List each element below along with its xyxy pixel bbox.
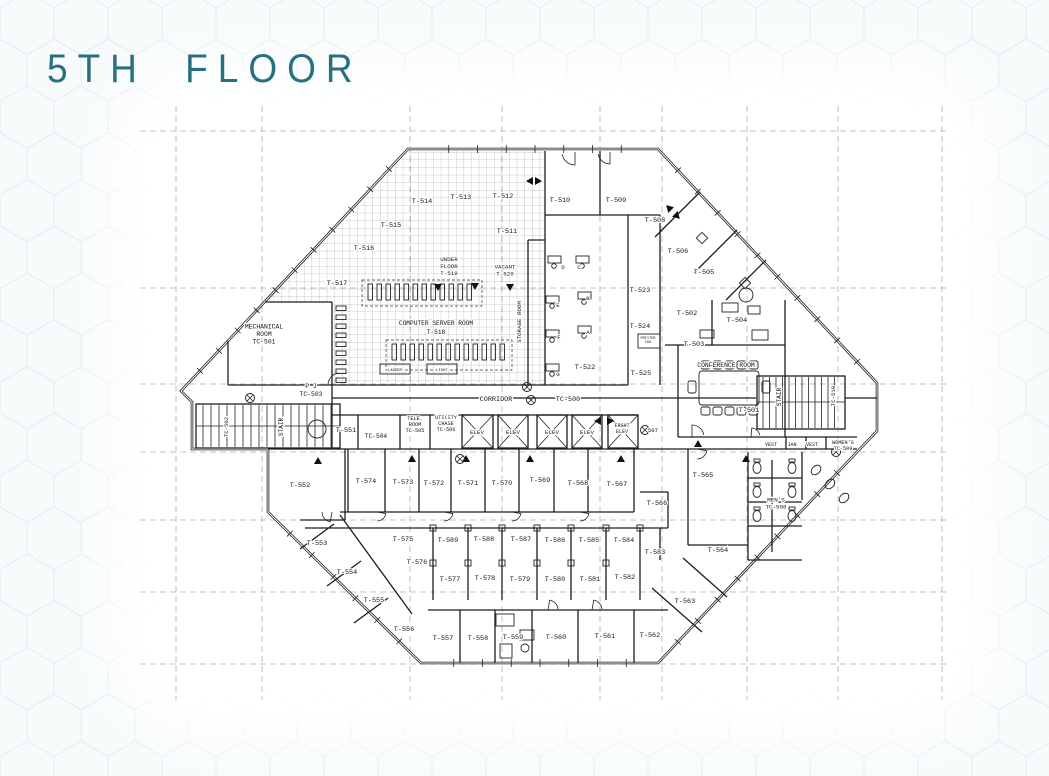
room-label: 507	[648, 427, 658, 434]
door-swing	[697, 449, 707, 459]
room-label: T-511	[497, 228, 517, 236]
room-label: LIGHT	[436, 369, 448, 373]
room-label: T-570	[492, 480, 512, 488]
room-label: WOMEN'STC-509	[832, 440, 854, 452]
room-label: TC-502	[223, 417, 230, 437]
room-label: STORAGE ROOM	[516, 301, 523, 343]
room-label: VEST	[806, 442, 818, 448]
room-label: UNDERFLOORT-519	[440, 256, 458, 277]
room-label: VEST	[765, 442, 777, 448]
room-label: T-566	[647, 500, 667, 508]
room-label: T-514	[412, 198, 432, 206]
room-label: T-517	[327, 280, 347, 288]
room-label: T-558	[468, 635, 488, 643]
room-label: T-576	[407, 559, 427, 567]
room-label: STAIR	[278, 417, 285, 436]
room-label: T-560	[546, 634, 566, 642]
room-label: MECHANICALROOMTC-501	[245, 323, 284, 345]
room-label: T-571	[458, 480, 478, 488]
room-label: T-583	[645, 549, 665, 557]
room-label: T-577	[440, 576, 460, 584]
floor-plan-drawing: T-514T-513T-512T-515T-516T-517T-511UNDER…	[0, 0, 1049, 776]
room-label: T-565	[693, 472, 713, 480]
room-label: LADDER	[388, 369, 402, 373]
room-label: T-578	[475, 575, 495, 583]
room-label: T-587	[511, 536, 531, 544]
room-label: T-561	[595, 633, 615, 641]
room-label: T-515	[381, 222, 401, 230]
room-label: T-588	[474, 536, 494, 544]
room-label: T-567	[607, 481, 627, 489]
room-label: T-589	[438, 537, 458, 545]
room-label: F	[557, 334, 561, 341]
room-label: T-585	[579, 537, 599, 545]
room-label: T-582	[615, 574, 635, 582]
room-label: T-574	[356, 478, 376, 486]
door-swing	[592, 600, 602, 610]
room-label: T-564	[708, 547, 728, 555]
room-label: T-504	[727, 317, 747, 325]
room-label: JAN	[787, 442, 796, 448]
room-label: T-568	[568, 480, 588, 488]
room-label: CONFERENCE ROOM	[697, 362, 755, 369]
room-label: T-579	[510, 576, 530, 584]
room-label: TC-500	[556, 396, 580, 404]
room-label: T-586	[545, 537, 565, 545]
room-label: T-516	[354, 245, 374, 253]
room-label: T-522	[575, 364, 595, 372]
room-label: D	[561, 264, 565, 271]
room-label: T-573	[393, 479, 413, 487]
room-label: A	[586, 329, 590, 336]
room-label: TC-510	[830, 385, 837, 406]
door-swing	[562, 152, 575, 165]
room-label: T-575	[393, 536, 413, 544]
room-label: T-556	[394, 626, 414, 634]
room-label: FRGHTELEV	[614, 423, 629, 435]
room-label: C	[577, 264, 581, 271]
room-label: E	[556, 302, 560, 309]
room-label: T-524	[630, 323, 650, 331]
room-label: COMPUTER SERVER ROOM	[399, 320, 474, 327]
room-label: T-512	[493, 193, 513, 201]
room-label: STAIR	[776, 387, 783, 406]
room-label: T-551	[336, 427, 356, 435]
room-label: T-557	[433, 635, 453, 643]
room-label: T-554	[337, 569, 357, 577]
room-label: T-510	[550, 197, 570, 205]
room-label: ELEV	[506, 429, 520, 436]
room-label: ELEV	[580, 429, 594, 436]
room-label: T-525	[631, 370, 651, 378]
room-label: B	[586, 295, 590, 302]
page: 5TH FLOOR T-514T-513T-512T-515T-516T-517…	[0, 0, 1049, 776]
room-label: PRINTERFAX	[640, 337, 656, 345]
room-label: T-569	[530, 477, 550, 485]
room-label: T-572	[424, 480, 444, 488]
room-label: T-559	[503, 634, 523, 642]
room-label: CORRIDOR	[480, 396, 513, 404]
door-swing	[548, 600, 558, 610]
room-label: T-509	[606, 197, 626, 205]
room-label: T-555	[364, 597, 384, 605]
room-label: ELEV	[545, 429, 559, 436]
room-label: T-503	[684, 341, 704, 349]
room-label: T-584	[614, 537, 634, 545]
room-label: UTILITYCHASETC-506	[435, 415, 458, 433]
room-label: ELEV	[470, 429, 484, 436]
room-label: T-552	[290, 482, 310, 490]
room-label: T-506	[668, 248, 688, 256]
room-label: T-501	[739, 407, 759, 415]
room-label: T-523	[630, 287, 650, 295]
room-label: T-562	[640, 632, 660, 640]
room-label: T-508	[645, 217, 665, 225]
room-label: T-518	[427, 329, 446, 336]
room-label: T-505	[694, 269, 714, 277]
room-label: VACANTT-520	[495, 264, 516, 278]
room-label: T-553	[307, 540, 327, 548]
room-label: T-580	[545, 576, 565, 584]
room-label: TELE.ROOMTC-505	[406, 416, 425, 434]
room-label: G	[556, 371, 560, 378]
room-label: MEN'STC-508	[766, 497, 787, 511]
door-swing	[692, 425, 704, 437]
room-label: T-502	[677, 310, 697, 318]
room-label: T-513	[451, 194, 471, 202]
room-label: T-563	[675, 598, 695, 606]
room-label: TC-504	[365, 433, 388, 440]
room-label: T-581	[580, 576, 600, 584]
